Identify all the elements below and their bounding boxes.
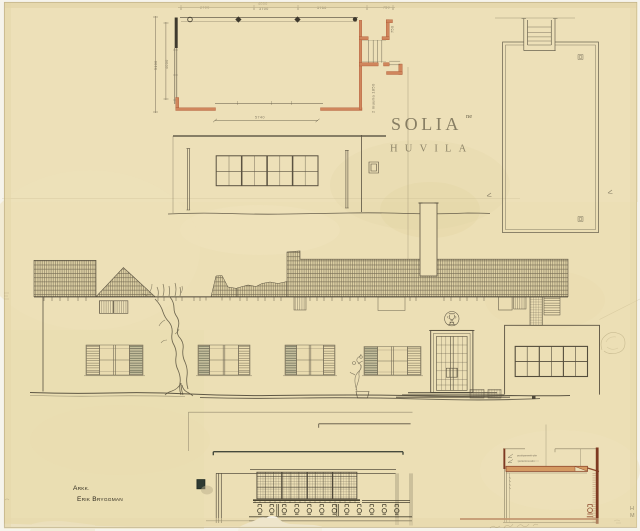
svg-text:5100: 5100	[154, 60, 158, 70]
svg-text:ARKK.: ARKK.	[73, 485, 90, 492]
svg-text:4000: 4000	[165, 59, 169, 69]
svg-text:2 muuria 1850: 2 muuria 1850	[371, 83, 376, 113]
svg-text:ERIK BRYGGMAN: ERIK BRYGGMAN	[77, 496, 123, 503]
svg-text:SOLIA: SOLIA	[391, 114, 462, 134]
svg-text:HUVILA: HUVILA	[390, 144, 473, 155]
svg-text:peiterima alin: peiterima alin	[518, 459, 535, 463]
svg-text:5740: 5740	[255, 116, 265, 120]
svg-text:ne: ne	[466, 113, 472, 120]
svg-text:750: 750	[390, 25, 395, 33]
svg-text:puolipaneeli ylin: puolipaneeli ylin	[517, 453, 537, 457]
